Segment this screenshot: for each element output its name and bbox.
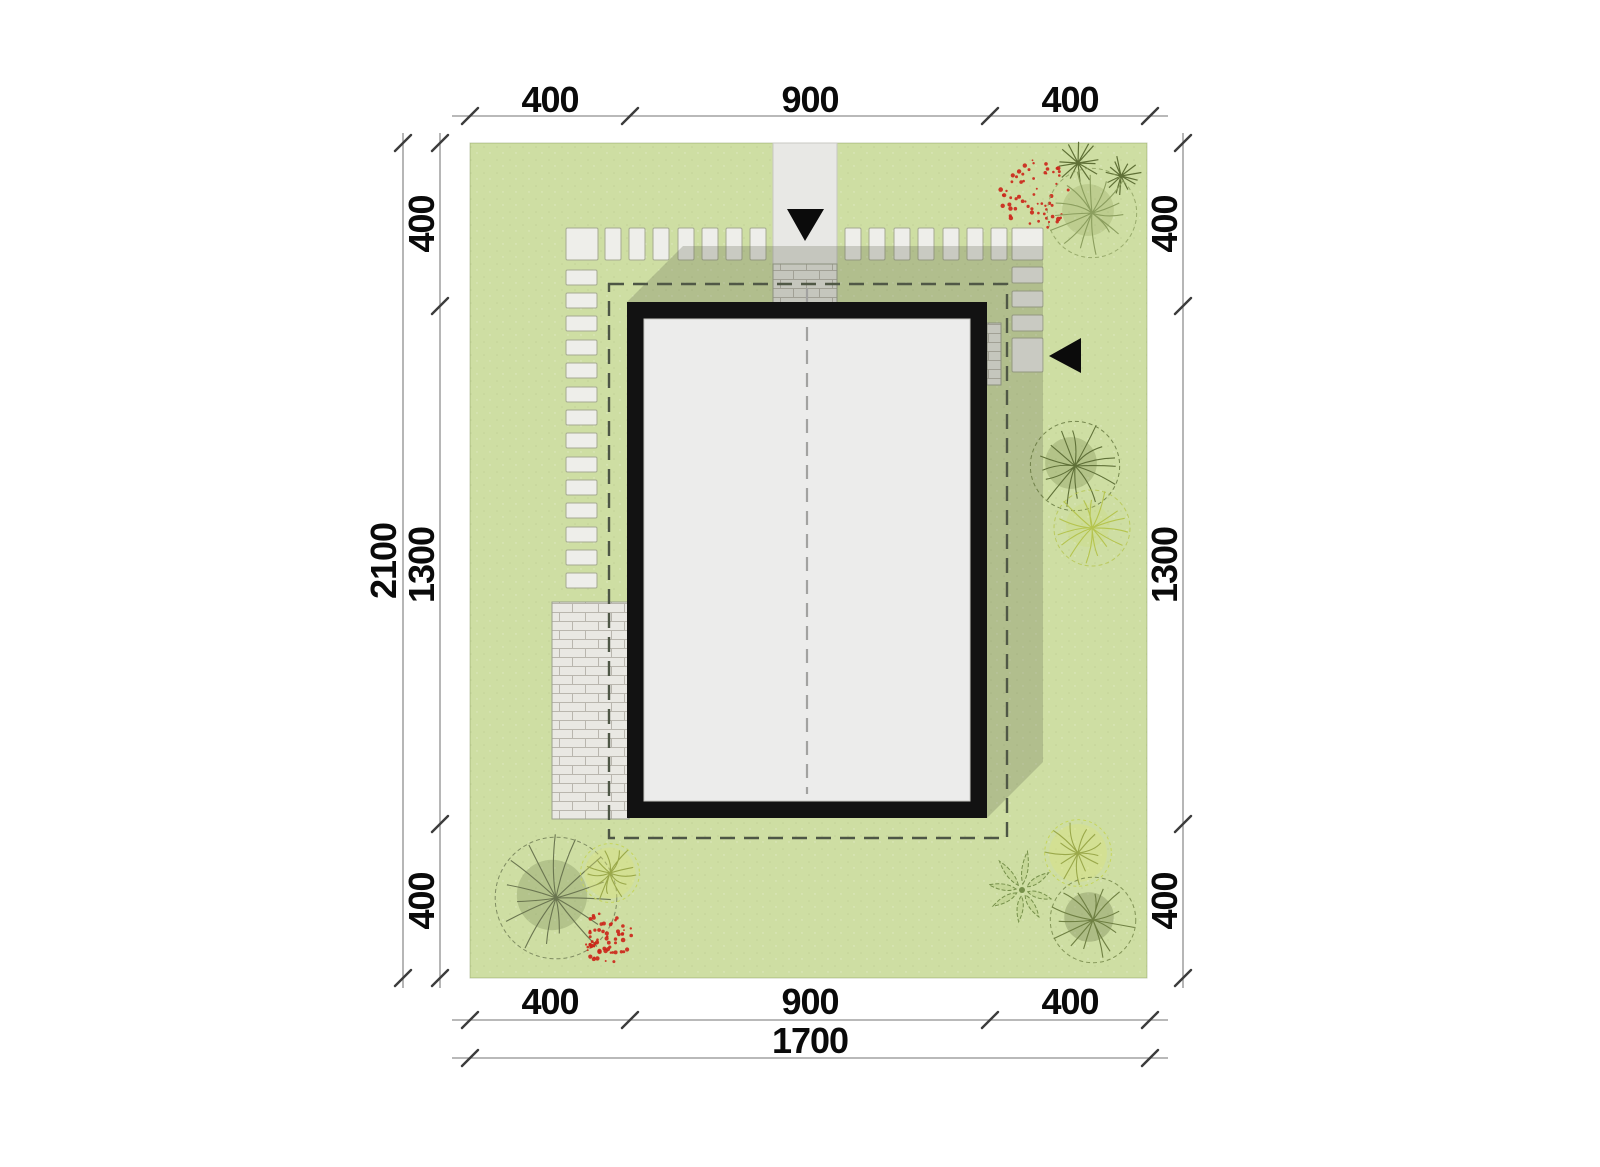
berry-dot [605,936,609,940]
dim-label-top-left: 400 [521,79,578,120]
dim-label-top-right: 400 [1041,79,1098,120]
dim-label-left-bottom: 400 [401,872,442,929]
berry-dot [620,950,623,953]
berry-dot [1052,171,1055,174]
stepping-stone [566,293,597,308]
berry-dot [589,930,592,933]
dimension-right: 400 1300 400 [1144,133,1191,988]
stepping-stone [566,527,597,542]
berry-dot [630,927,632,929]
berry-dot [1029,222,1032,225]
berry-dot [615,916,619,920]
berry-dot [593,957,595,959]
berry-dot [1005,190,1007,192]
berry-dot [601,930,605,934]
berry-dot [1058,170,1061,173]
berry-dot [621,932,624,935]
berry-dot [1051,204,1054,207]
berry-dot [1030,210,1034,214]
stepping-stone [566,503,597,518]
berry-dot [1033,193,1036,196]
berry-dot [1032,162,1034,164]
dim-label-bottom-right: 400 [1041,981,1098,1022]
berry-dot [1017,195,1021,199]
berry-dot [591,940,594,943]
dim-label-bottom-total: 1700 [772,1020,848,1061]
stepping-stone [566,387,597,402]
stepping-stone [605,228,621,260]
berry-dot [1051,215,1055,219]
berry-dot [598,913,601,916]
berry-dot [1008,206,1012,210]
berry-dot [621,938,626,943]
plant-center [1019,887,1025,893]
stepping-stone [566,228,598,260]
berry-dot [1027,205,1030,208]
building [627,288,987,818]
berry-dot [592,916,596,920]
berry-dot [1048,221,1050,223]
berry-dot [1024,200,1026,202]
berry-dot [1009,216,1013,220]
berry-dot [593,942,596,945]
berry-dot [595,956,599,960]
berry-dot [597,928,601,932]
berry-dot [1014,207,1018,211]
stepping-stone [566,316,597,331]
berry-dot [1002,194,1005,197]
berry-dot [1041,202,1044,205]
berry-dot [1032,159,1034,161]
berry-dot [606,947,610,951]
berry-dot [629,934,633,938]
berry-dot [597,949,601,953]
stepping-stone [566,410,597,425]
berry-dot [614,941,617,944]
berry-dot [587,949,589,951]
berry-dot [593,929,596,932]
berry-dot [1011,173,1015,177]
stepping-stone [566,573,597,588]
dim-label-top-middle: 900 [781,79,838,120]
dim-label-right-middle: 1300 [1144,527,1185,603]
berry-dot [1046,173,1048,175]
dim-label-left-total: 2100 [363,523,404,599]
stepping-stone [566,433,597,448]
berry-dot [1009,196,1012,199]
berry-dot [1044,162,1048,166]
stepping-stone [566,363,597,378]
berry-dot [998,187,1003,192]
berry-dot [1037,203,1039,205]
berry-dot [1058,174,1061,177]
berry-dot [596,938,599,941]
berry-dot [1011,180,1014,183]
berry-dot [1001,204,1005,208]
berry-dot [614,950,618,954]
dimension-bottom: 400 900 400 1700 [452,981,1168,1066]
berry-dot [1056,166,1060,170]
berry-dot [1023,163,1027,167]
berry-dot [1036,188,1038,190]
berry-dot [623,929,625,931]
berry-dot [1037,212,1040,215]
dimension-top: 400 900 400 [452,79,1168,124]
berry-dot [605,960,607,962]
stepping-stone [566,480,597,495]
dim-label-bottom-middle: 900 [781,981,838,1022]
berry-dot [621,924,625,928]
berry-dot [614,937,617,940]
berry-dot [1043,213,1046,216]
berry-dot [585,943,587,945]
berry-dot [1037,220,1040,223]
dim-label-right-top: 400 [1144,195,1185,252]
berry-dot [625,947,629,951]
stepping-stone [566,340,597,355]
berry-dot [1056,220,1059,223]
berry-dot [610,922,613,925]
berry-dot [1022,180,1025,183]
berry-dot [602,922,606,926]
berry-dot [1044,205,1046,207]
site-plan-page: 400 900 400 2100 400 1300 400 400 1300 4… [0,0,1600,1167]
berry-dot [1007,203,1011,207]
berry-dot [1032,177,1035,180]
site-plan-drawing: 400 900 400 2100 400 1300 400 400 1300 4… [0,0,1600,1167]
berry-dot [610,952,612,954]
stepping-stone [566,457,597,472]
dim-label-right-bottom: 400 [1144,872,1185,929]
berry-dot [587,946,590,949]
berry-dot [1030,207,1033,210]
berry-dot [1067,189,1070,192]
dim-label-bottom-left: 400 [521,981,578,1022]
berry-dot [616,929,620,933]
berry-dot [1059,217,1062,220]
stepping-stone [566,270,597,285]
patio-terrace [552,602,629,819]
stepping-stone [566,550,597,565]
driveway [773,143,837,264]
dim-label-left-top: 400 [401,195,442,252]
berry-dot [605,931,609,935]
berry-dot [1017,169,1021,173]
dimension-left: 2100 400 1300 400 [363,133,448,988]
berry-dot [1028,168,1031,171]
stepping-stone [629,228,645,260]
berry-dot [589,935,592,938]
berry-dot [607,941,611,945]
stepping-stone [653,228,669,260]
berry-dot [588,955,592,959]
berry-dot [1021,199,1025,203]
berry-dot [1021,173,1024,176]
dim-label-left-middle: 1300 [401,527,442,603]
berry-dot [612,960,615,963]
berry-dot [1046,226,1049,229]
berry-dot [1046,167,1050,171]
berry-dot [590,944,594,948]
berry-dot [1015,175,1018,178]
